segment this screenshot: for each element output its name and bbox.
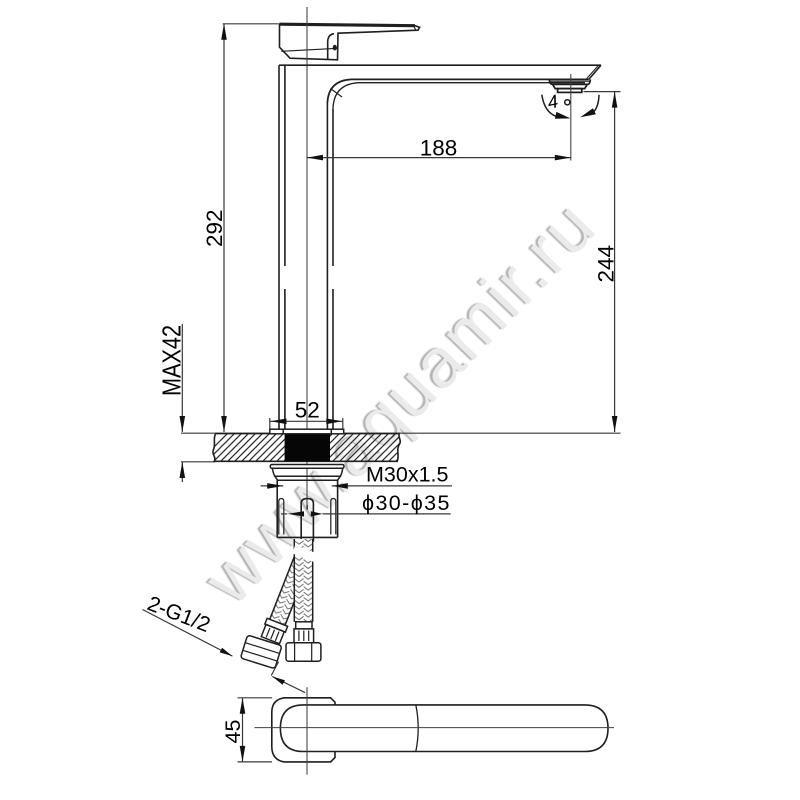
svg-text:244: 244	[594, 245, 619, 283]
svg-text:MAX42: MAX42	[157, 325, 187, 396]
svg-text:45: 45	[221, 720, 245, 744]
svg-text:ϕ30-ϕ35: ϕ30-ϕ35	[362, 491, 451, 515]
svg-text:188: 188	[420, 136, 458, 161]
svg-text:M30x1.5: M30x1.5	[366, 463, 449, 487]
svg-text:2-G1/2: 2-G1/2	[144, 591, 213, 637]
svg-text:292: 292	[202, 209, 227, 247]
svg-text:52: 52	[295, 398, 320, 423]
svg-text:www.aquamir.ru: www.aquamir.ru	[189, 186, 611, 619]
